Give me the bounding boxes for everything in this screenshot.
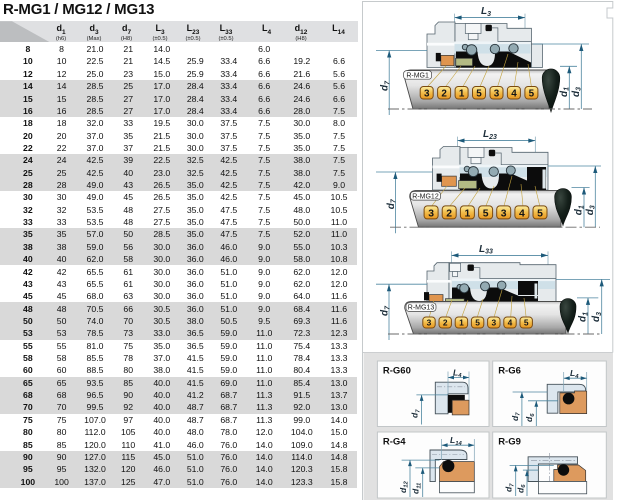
svg-text:3: 3 [427,317,432,327]
svg-text:1: 1 [465,208,471,219]
svg-text:2: 2 [443,317,448,327]
svg-text:5: 5 [529,88,535,99]
svg-text:5: 5 [524,317,529,327]
svg-text:L33: L33 [479,244,493,256]
svg-text:d3: d3 [591,312,603,322]
svg-text:d1: d1 [578,312,590,322]
svg-text:2: 2 [441,88,447,99]
svg-text:3: 3 [424,88,430,99]
svg-text:5: 5 [475,317,480,327]
svg-text:3: 3 [494,88,500,99]
svg-text:d1: d1 [559,87,571,97]
svg-text:R-G4: R-G4 [383,437,406,448]
svg-text:2: 2 [446,208,452,219]
svg-text:3: 3 [491,317,496,327]
svg-text:L3: L3 [481,6,491,18]
svg-text:d3: d3 [571,87,583,97]
svg-text:R-G6: R-G6 [498,366,521,377]
svg-text:1: 1 [459,88,465,99]
svg-text:R-MG1: R-MG1 [406,72,429,79]
svg-text:d1: d1 [574,205,586,215]
svg-text:4: 4 [508,317,513,327]
svg-text:4: 4 [511,88,517,99]
svg-text:3: 3 [501,208,507,219]
svg-text:d7: d7 [380,80,392,91]
svg-text:L23: L23 [483,129,497,141]
svg-text:d7: d7 [380,305,392,316]
svg-text:R-G60: R-G60 [383,366,411,377]
svg-text:d3: d3 [585,205,597,215]
svg-text:3: 3 [428,208,434,219]
svg-text:4: 4 [519,208,525,219]
svg-text:d7: d7 [386,198,398,209]
svg-text:R-MG13: R-MG13 [408,305,435,312]
svg-text:5: 5 [476,88,482,99]
svg-text:R-G9: R-G9 [498,437,521,448]
svg-text:1: 1 [459,317,464,327]
svg-text:R-MG12: R-MG12 [412,193,439,200]
svg-text:5: 5 [483,208,489,219]
svg-text:5: 5 [537,208,543,219]
